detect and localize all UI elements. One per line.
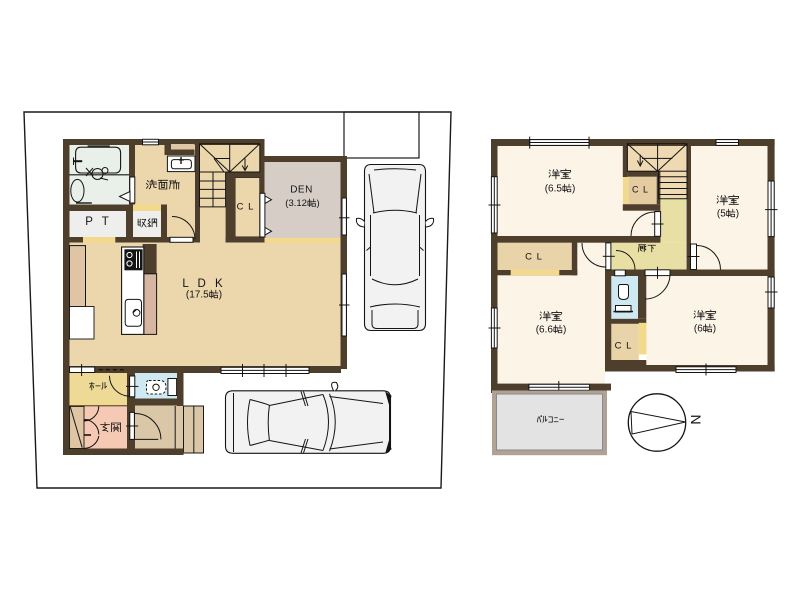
svg-text:C L: C L — [525, 252, 543, 263]
svg-text:(17.5: (17.5 — [186, 290, 209, 301]
svg-text:L D K: L D K — [182, 278, 225, 290]
svg-text:): ) — [713, 324, 716, 335]
svg-text:(6.6: (6.6 — [536, 325, 554, 336]
svg-text:(6: (6 — [694, 324, 703, 335]
svg-text:(5: (5 — [717, 209, 726, 220]
svg-text:(3.12: (3.12 — [285, 198, 307, 209]
svg-text:): ) — [219, 290, 222, 301]
svg-text:): ) — [317, 198, 320, 209]
svg-text:): ) — [572, 184, 575, 195]
svg-text:): ) — [736, 209, 739, 220]
svg-text:P T: P T — [85, 216, 111, 228]
svg-text:): ) — [563, 325, 566, 336]
svg-text:C L: C L — [615, 341, 633, 352]
svg-text:(6.5: (6.5 — [545, 184, 563, 195]
svg-text:C L: C L — [632, 185, 649, 195]
svg-text:N: N — [688, 415, 704, 425]
svg-text:DEN: DEN — [290, 185, 313, 196]
svg-text:C L: C L — [237, 202, 255, 213]
